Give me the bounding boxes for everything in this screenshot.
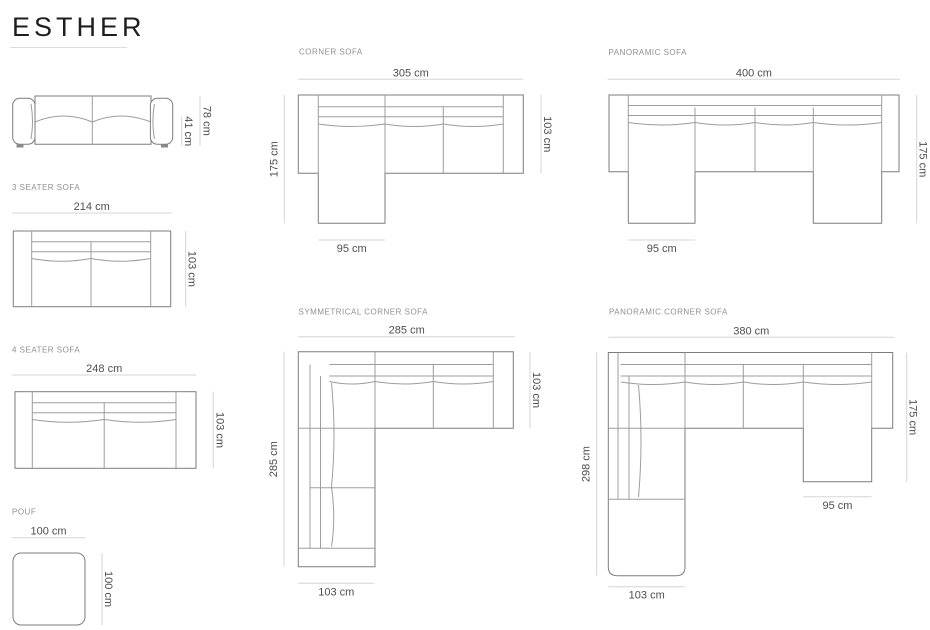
pouf-diagram: POUF 100 cm 100 cm [12, 508, 114, 626]
panoramic-sofa-drawing [609, 95, 899, 223]
three-seater-depth-dim-label: 103 cm [186, 251, 198, 287]
four-seater-depth-dim-label: 103 cm [213, 412, 225, 448]
symmetrical-left-length-dim-label: 285 cm [268, 441, 280, 477]
four-seater-drawing [15, 392, 196, 469]
corner-total-depth-dim-label: 175 cm [268, 141, 280, 177]
corner-sofa-diagram: CORNER SOFA 305 cm 175 cm 103 cm 95 cm [268, 48, 553, 256]
front-total-height-dim-label: 78 cm [201, 106, 213, 136]
spec-sheet: ESTHER 78 cm 41 cm 3 SEATER SO [0, 0, 930, 630]
panoramic-corner-width-dim-label: 380 cm [733, 325, 769, 337]
front-view-sofa-drawing [13, 96, 173, 148]
front-seat-height-dim-label: 41 cm [182, 116, 194, 146]
corner-sofa-label: CORNER SOFA [299, 48, 363, 57]
symmetrical-depth-dim-label: 103 cm [530, 372, 542, 408]
symmetrical-bottom-width-dim-label: 103 cm [318, 586, 354, 598]
pouf-depth-dim-label: 100 cm [102, 571, 114, 607]
panoramic-corner-label: PANORAMIC CORNER SOFA [609, 308, 728, 317]
corner-sofa-drawing [298, 95, 523, 223]
panoramic-sofa-diagram: PANORAMIC SOFA 400 cm 175 cm 95 cm [608, 48, 929, 255]
corner-chaise-width-dim-label: 95 cm [337, 243, 367, 255]
four-seater-diagram: 4 SEATER SOFA 248 cm 103 cm [12, 346, 225, 469]
three-seater-diagram: 3 SEATER SOFA 214 cm 103 cm [12, 183, 198, 307]
panoramic-chaise-width-dim-label: 95 cm [647, 243, 677, 255]
panoramic-corner-chaise-width-dim-label: 95 cm [823, 500, 853, 512]
symmetrical-corner-diagram: SYMMETRICAL CORNER SOFA 285 cm 285 cm 10… [268, 308, 542, 599]
panoramic-corner-drawing [608, 353, 892, 576]
symmetrical-corner-drawing [298, 352, 513, 567]
symmetrical-width-dim-label: 285 cm [389, 325, 425, 337]
diagram-canvas: 78 cm 41 cm 3 SEATER SOFA 214 cm 103 cm … [0, 0, 930, 630]
corner-depth-dim-label: 103 cm [541, 116, 553, 152]
pouf-drawing [13, 553, 85, 625]
three-seater-drawing [13, 231, 170, 307]
panoramic-corner-total-depth-dim-label: 175 cm [907, 399, 919, 435]
panoramic-sofa-label: PANORAMIC SOFA [609, 48, 688, 57]
pouf-width-dim-label: 100 cm [30, 526, 66, 538]
corner-width-dim-label: 305 cm [393, 67, 429, 79]
symmetrical-corner-label: SYMMETRICAL CORNER SOFA [299, 308, 429, 317]
pouf-label: POUF [12, 508, 36, 517]
panoramic-corner-bottom-width-dim-label: 103 cm [629, 590, 665, 602]
four-seater-label: 4 SEATER SOFA [12, 346, 80, 355]
panoramic-corner-left-length-dim-label: 298 cm [581, 446, 593, 482]
panoramic-corner-diagram: PANORAMIC CORNER SOFA 380 cm 298 cm 175 … [581, 308, 919, 602]
four-seater-width-dim-label: 248 cm [86, 363, 122, 375]
front-view-sofa-diagram: 78 cm 41 cm [13, 96, 213, 148]
panoramic-total-depth-dim-label: 175 cm [917, 141, 929, 177]
three-seater-width-dim-label: 214 cm [74, 201, 110, 213]
panoramic-width-dim-label: 400 cm [736, 67, 772, 79]
three-seater-label: 3 SEATER SOFA [12, 183, 80, 192]
